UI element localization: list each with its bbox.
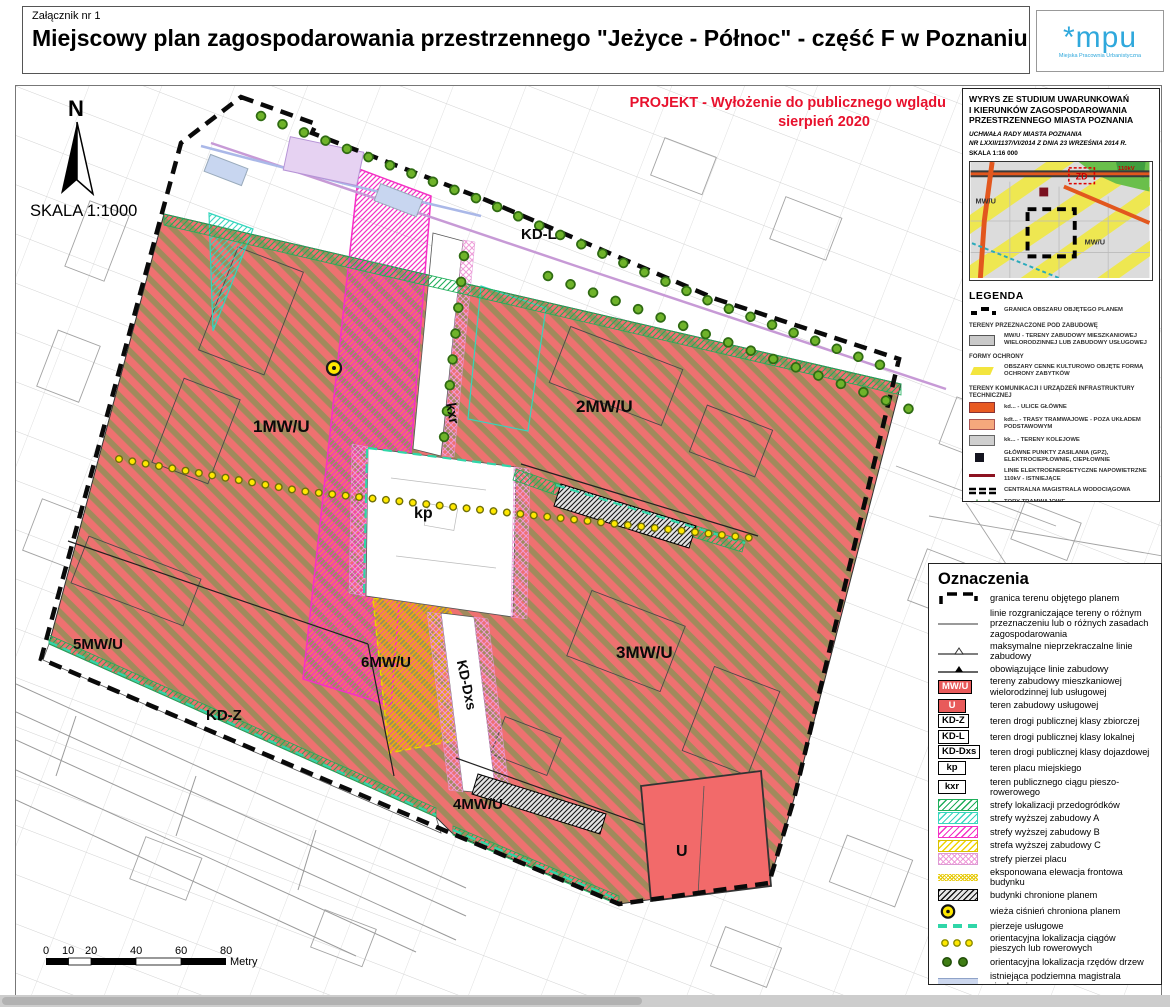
legenda-section: FORMY OCHRONY: [969, 353, 1153, 360]
kdl-code-box: KD-L: [938, 730, 969, 744]
inset-label-110kv: 110kV: [1118, 166, 1135, 172]
boundary-swatch-icon: [969, 306, 999, 316]
legend-item: strefy lokalizacji przedogródków: [938, 799, 1152, 811]
region-label-1mwu: 1MW/U: [253, 417, 310, 436]
svg-text:60: 60: [175, 945, 187, 957]
region-label-4mwu: 4MW/U: [453, 796, 503, 813]
legenda-item: GRANICA OBSZARU OBJĘTEGO PLANEM: [969, 306, 1153, 316]
legend-item: pierzeje usługowe: [938, 921, 1152, 931]
legend-item: linie rozgraniczające tereny o różnym pr…: [938, 608, 1152, 639]
project-note: PROJEKT - Wyłożenie do publicznego wgląd…: [630, 94, 946, 132]
power-line-swatch-icon: [969, 474, 995, 477]
legenda-section: TERENY KOMUNIKACJI I URZĄDZEŃ INFRASTRUK…: [969, 385, 1153, 399]
studium-panel: WYRYS ZE STUDIUM UWARUNKOWAŃ I KIERUNKÓW…: [962, 88, 1160, 502]
studium-inset-map: ZD 110kV MW/U MW/U: [969, 161, 1153, 281]
zone-a-swatch-icon: [938, 812, 978, 824]
service-frontage-icon: [938, 924, 984, 928]
dividing-line-icon: [938, 623, 984, 625]
svg-text:20: 20: [85, 945, 97, 957]
plaza-frontage-swatch-icon: [938, 853, 978, 865]
railway-swatch-icon: [969, 435, 995, 446]
scale-bar-unit: Metry: [230, 956, 258, 968]
inset-label-zd: ZD: [1076, 172, 1088, 182]
main-street-swatch-icon: [969, 402, 995, 413]
u-code-box: U: [938, 699, 966, 713]
protected-building-swatch-icon: [938, 889, 978, 901]
legend-item: kxr teren publicznego ciągu pieszo-rower…: [938, 777, 1152, 798]
header: Załącznik nr 1 Miejscowy plan zagospodar…: [22, 6, 1030, 74]
tree-row-icon: [938, 955, 984, 969]
region-label-5mwu: 5MW/U: [73, 636, 123, 653]
horizontal-scrollbar[interactable]: [0, 995, 1170, 1007]
water-tower-icon: [938, 903, 984, 920]
studium-resolution: UCHWAŁA RADY MIASTA POZNANIA NR LXXII/11…: [969, 131, 1153, 148]
pedestrian-route-icon: [938, 936, 984, 950]
scrollbar-thumb[interactable]: [2, 997, 642, 1005]
legenda-title: LEGENDA: [969, 290, 1153, 302]
attachment-label: Załącznik nr 1: [32, 10, 1020, 22]
legenda-item: OBSZARY CENNE KULTUROWO OBJĘTE FORMĄ OCH…: [969, 364, 1153, 379]
heritage-area-swatch-icon: [970, 367, 994, 375]
front-garden-swatch-icon: [938, 799, 978, 811]
water-tower-symbol: [327, 361, 341, 375]
legend-item: kp teren placu miejskiego: [938, 761, 1152, 775]
svg-text:N: N: [68, 96, 84, 121]
exposed-facade-swatch-icon: [938, 874, 978, 881]
legend-item: orientacyjna lokalizacja ciągów pieszych…: [938, 933, 1152, 954]
region-label-2mwu: 2MW/U: [576, 397, 633, 416]
project-note-line2: sierpień 2020: [630, 113, 946, 132]
plan-boundary-icon: [938, 591, 984, 607]
legend-item: istniejąca podziemna magistrala ciepłown…: [938, 971, 1152, 985]
studium-scale: SKALA 1:16 000: [969, 150, 1153, 157]
legenda-item: GŁÓWNE PUNKTY ZASILANIA (GPZ), ELEKTROCI…: [969, 450, 1153, 465]
kdz-code-box: KD-Z: [938, 714, 969, 728]
legend-item: granica terenu objętego planem: [938, 591, 1152, 607]
region-label-kdz: KD-Z: [206, 707, 242, 724]
kp-code-box: kp: [938, 761, 966, 775]
tram-track-swatch-icon: [969, 498, 999, 502]
oznaczenia-panel: Oznaczenia granica terenu objętego plane…: [928, 563, 1162, 985]
region-label-6mwu: 6MW/U: [361, 654, 411, 671]
legenda-item: CENTRALNA MAGISTRALA WODOCIĄGOWA: [969, 487, 1153, 495]
mpu-logo: *mpu Miejska Pracownia Urbanistyczna: [1036, 10, 1164, 72]
mwu-swatch-icon: [969, 335, 995, 346]
kddxs-code-box: KD-Dxs: [938, 745, 980, 759]
scale-label: SKALA 1:1000: [30, 202, 137, 220]
power-station-swatch-icon: [975, 453, 984, 462]
legenda-item: kd... - ULICE GŁÓWNE: [969, 402, 1153, 413]
legend-item: KD-Dxs teren drogi publicznej klasy doja…: [938, 745, 1152, 759]
legenda-section: TERENY PRZEZNACZONE POD ZABUDOWĘ: [969, 322, 1153, 329]
water-main-swatch-icon: [969, 487, 999, 495]
svg-text:40: 40: [130, 945, 142, 957]
kxr-code-box: kxr: [938, 780, 966, 794]
legend-item: eksponowana elewacja frontowa budynku: [938, 867, 1152, 888]
legenda-item: kdt... - TRASY TRAMWAJOWE - POZA UKŁADEM…: [969, 417, 1153, 432]
legend-item: orientacyjna lokalizacja rzędów drzew: [938, 955, 1152, 969]
oznaczenia-title: Oznaczenia: [938, 570, 1152, 589]
svg-text:0: 0: [43, 945, 49, 957]
mwu-code-box: MW/U: [938, 680, 972, 694]
u-service-block: [641, 771, 771, 901]
underground-heating-main-icon: [938, 978, 984, 985]
project-note-line1: PROJEKT - Wyłożenie do publicznego wgląd…: [630, 94, 946, 113]
legend-item: KD-L teren drogi publicznej klasy lokaln…: [938, 730, 1152, 744]
legend-item: maksymalne nieprzekraczalne linie zabudo…: [938, 641, 1152, 662]
tram-route-swatch-icon: [969, 419, 995, 430]
region-label-kdl: KD-L: [521, 226, 557, 243]
inset-label-mwu-left: MW/U: [975, 197, 995, 206]
mpu-logo-tagline: Miejska Pracownia Urbanistyczna: [1059, 53, 1141, 59]
svg-text:10: 10: [62, 945, 74, 957]
legenda-item: MW/U - TERENY ZABUDOWY MIESZKANIOWEJ WIE…: [969, 333, 1153, 348]
mandatory-building-line-icon: [938, 663, 984, 675]
legend-item: strefa wyższej zabudowy C: [938, 840, 1152, 852]
legend-item: strefy pierzei placu: [938, 853, 1152, 865]
region-label-u: U: [676, 843, 688, 860]
region-label-kp: kp: [414, 505, 433, 522]
legend-item: obowiązujące linie zabudowy: [938, 663, 1152, 675]
legenda-item: TORY TRAMWAJOWE: [969, 498, 1153, 502]
legend-item: strefy wyższej zabudowy A: [938, 812, 1152, 824]
legend-item: U teren zabudowy usługowej: [938, 699, 1152, 713]
legenda-item: LINIE ELEKTROENERGETYCZNE NAPOWIETRZNE 1…: [969, 468, 1153, 483]
page-title: Miejscowy plan zagospodarowania przestrz…: [32, 25, 1020, 52]
max-building-line-icon: [938, 645, 984, 657]
legend-item: wieża ciśnień chroniona planem: [938, 903, 1152, 920]
mpu-logo-mark: *mpu: [1063, 24, 1137, 52]
studium-title: WYRYS ZE STUDIUM UWARUNKOWAŃ I KIERUNKÓW…: [969, 94, 1153, 126]
region-label-3mwu: 3MW/U: [616, 643, 673, 662]
inset-label-mwu-right: MW/U: [1085, 238, 1105, 247]
legend-item: strefy wyższej zabudowy B: [938, 826, 1152, 838]
legenda-item: kk... - TERENY KOLEJOWE: [969, 435, 1153, 446]
legend-item: budynki chronione planem: [938, 889, 1152, 901]
kp-plaza: [366, 448, 516, 617]
zone-b-swatch-icon: [938, 826, 978, 838]
legend-item: KD-Z teren drogi publicznej klasy zbiorc…: [938, 714, 1152, 728]
zone-c-swatch-icon: [938, 840, 978, 852]
legend-item: MW/U tereny zabudowy mieszkaniowej wielo…: [938, 676, 1152, 697]
